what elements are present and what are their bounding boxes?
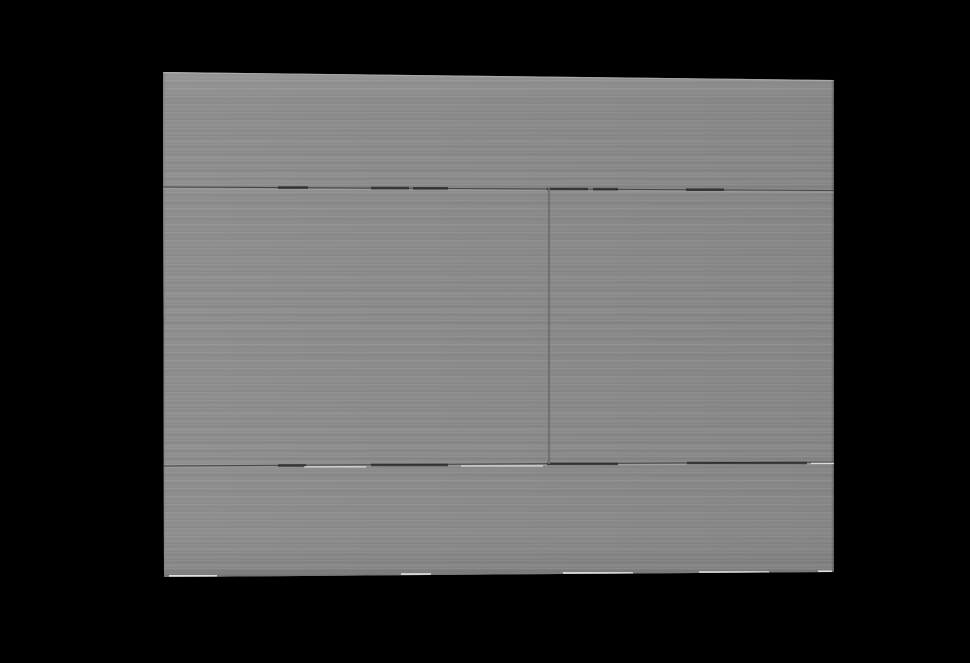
right-flush-button[interactable]	[550, 190, 834, 462]
left-flush-button[interactable]	[166, 188, 549, 465]
bottom-edge-highlight	[169, 571, 832, 576]
top-edge-highlight	[163, 73, 834, 81]
brand-logo: Iberica Blanca	[708, 591, 831, 627]
product-photo: Iberica Blanca	[0, 0, 970, 663]
dual-flush-plate: Iberica Blanca	[163, 72, 834, 577]
